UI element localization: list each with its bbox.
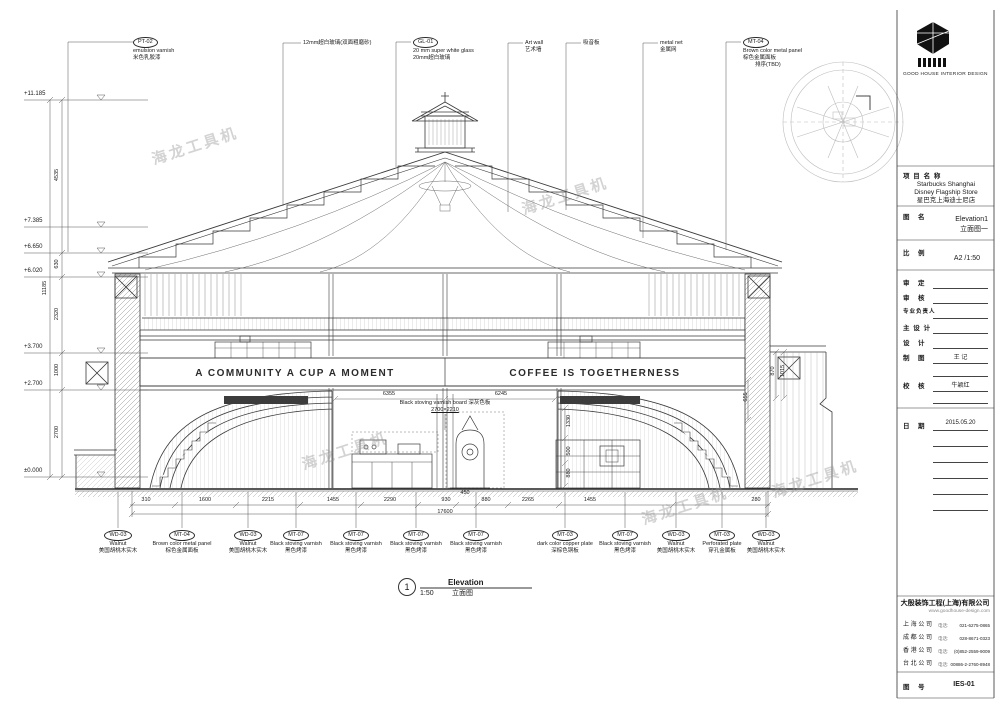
dim-total: 17600 bbox=[425, 509, 465, 516]
level-label: +6.650 bbox=[24, 244, 43, 251]
office-name: 成 都 公 司 bbox=[903, 635, 932, 642]
view-title-en: Elevation bbox=[448, 578, 484, 588]
material-label-cn: 12mm超白玻璃(双面粗磨砂) bbox=[303, 40, 371, 47]
level-label: +6.020 bbox=[24, 268, 43, 275]
tel-label: 电话: bbox=[938, 649, 948, 655]
material-callout: WD-03 Walnut 美国胡桃木实木 bbox=[726, 530, 806, 555]
dim-value: 880 bbox=[466, 497, 506, 504]
sign-label: 设 计 bbox=[903, 337, 926, 347]
level-label: +2.700 bbox=[24, 381, 43, 388]
cupola bbox=[412, 92, 478, 152]
sign-value: 王 记 bbox=[933, 352, 988, 361]
project-name-cn: 星巴克上海迪士尼店 bbox=[900, 197, 992, 205]
dim-value: 870 bbox=[770, 354, 776, 388]
sign-label: 校 核 bbox=[903, 380, 926, 390]
material-code: MT-03 bbox=[552, 530, 578, 541]
board-dim: 2700×2210 bbox=[360, 407, 530, 414]
dim-value: 6355 bbox=[372, 391, 406, 398]
dim-value: 1600 bbox=[185, 497, 225, 504]
sign-label: 审 核 bbox=[903, 292, 926, 302]
dim-value: 1455 bbox=[570, 497, 610, 504]
material-label-cn: 黑色烤漆 bbox=[436, 548, 516, 555]
sign-label: 专业负责人 bbox=[903, 307, 936, 315]
tent-ceiling bbox=[145, 162, 745, 272]
date-value: 2015.05.20 bbox=[933, 420, 988, 426]
dim-value: 2215 bbox=[248, 497, 288, 504]
office-name: 上 海 公 司 bbox=[903, 622, 932, 629]
project-label: 项 目 名 称 bbox=[903, 170, 941, 180]
dim-value: 880 bbox=[566, 456, 572, 490]
dim-total: 11185 bbox=[42, 271, 48, 305]
office-name: 香 港 公 司 bbox=[903, 648, 932, 655]
material-label-cn: 20mm超白玻璃 bbox=[413, 55, 450, 62]
banner-text-left: A COMMUNITY A CUP A MOMENT bbox=[150, 363, 440, 383]
material-code: MT-04 bbox=[169, 530, 195, 541]
tel-label: 电话: bbox=[938, 623, 948, 629]
key-plan bbox=[783, 62, 903, 182]
mezzanine bbox=[140, 274, 745, 358]
elevation-linework bbox=[0, 0, 1000, 707]
view-title-cn: 立面图 bbox=[452, 590, 473, 599]
material-label-cn: 艺术墙 bbox=[525, 47, 542, 54]
tel-label: 电话: bbox=[938, 636, 948, 642]
office-tel: 021-6275-0865 bbox=[948, 623, 990, 628]
dim-value: 1330 bbox=[566, 404, 572, 438]
dim-value: 655 bbox=[743, 380, 749, 414]
drawing-number-value: IES-01 bbox=[940, 681, 988, 690]
dim-value: 4535 bbox=[54, 158, 60, 192]
dim-value: 310 bbox=[126, 497, 166, 504]
material-note: 排序(TBD) bbox=[755, 62, 781, 69]
project-name-en2: Disney Flagship Store bbox=[900, 189, 992, 197]
company-website: www.goodhouse-design.com bbox=[898, 609, 990, 614]
material-code: WD-03 bbox=[752, 530, 779, 541]
dim-value: 2700 bbox=[54, 415, 60, 449]
drawing-name-en: Elevation1 bbox=[900, 216, 988, 225]
office-name: 台 北 公 司 bbox=[903, 661, 932, 668]
dim-value: 6245 bbox=[484, 391, 518, 398]
sign-label: 审 定 bbox=[903, 277, 926, 287]
material-code: WD-03 bbox=[104, 530, 131, 541]
tel-label: 电话: bbox=[938, 662, 948, 668]
dim-value: 630 bbox=[54, 247, 60, 281]
sign-value: 牛颖红 bbox=[933, 380, 988, 389]
dim-value: 1000 bbox=[54, 353, 60, 387]
material-code: MT-07 bbox=[283, 530, 309, 541]
material-code: MT-07 bbox=[463, 530, 489, 541]
office-tel: 00886-2-2760-8948 bbox=[948, 662, 990, 667]
dim-value: 930 bbox=[426, 497, 466, 504]
office-tel: (0)852-2559-9009 bbox=[948, 649, 990, 654]
drawing-number-label: 图 号 bbox=[903, 681, 926, 691]
scale-value: A2 /1:50 bbox=[900, 255, 980, 264]
level-label: +11.185 bbox=[24, 91, 45, 98]
dim-value: 2265 bbox=[508, 497, 548, 504]
material-code: MT-04 bbox=[743, 37, 769, 48]
view-scale: 1:50 bbox=[420, 590, 434, 599]
good-house-logo-icon bbox=[917, 22, 949, 67]
level-label: ±0.000 bbox=[24, 468, 42, 475]
material-code: PT-02 bbox=[133, 37, 158, 48]
drawing-sheet: 海龙工具机 海龙工具机 海龙工具机 海龙工具机 海龙工具机 PT-02 emul… bbox=[0, 0, 1000, 707]
dim-value: 1455 bbox=[313, 497, 353, 504]
material-label-cn: 吸音板 bbox=[583, 40, 600, 47]
project-name-en: Starbucks Shanghai bbox=[900, 181, 992, 189]
material-label-cn: 美国胡桃木实木 bbox=[726, 548, 806, 555]
material-callout: MT-07 Black stoving varnish 黑色烤漆 bbox=[436, 530, 516, 555]
logo-glyph bbox=[918, 58, 946, 67]
level-label: +7.385 bbox=[24, 218, 43, 225]
material-code: MT-07 bbox=[403, 530, 429, 541]
material-code: MT-07 bbox=[343, 530, 369, 541]
company-name: 大殷装饰工程(上海)有限公司 bbox=[898, 600, 992, 609]
drawing-name-cn: 立面图一 bbox=[900, 226, 988, 235]
dim-value: 280 bbox=[736, 497, 776, 504]
banner-text-right: COFFEE IS TOGETHERNESS bbox=[450, 363, 740, 383]
level-label: +3.700 bbox=[24, 344, 43, 351]
dim-value: 2290 bbox=[370, 497, 410, 504]
material-code: MT-07 bbox=[612, 530, 638, 541]
sign-label: 主 设 计 bbox=[903, 322, 931, 332]
material-label-cn: 金属网 bbox=[660, 47, 677, 54]
dim-value: 1015 bbox=[780, 354, 786, 388]
dim-value: 2320 bbox=[54, 297, 60, 331]
date-label: 日 期 bbox=[903, 420, 926, 430]
sign-label: 制 图 bbox=[903, 352, 926, 362]
view-number-bubble: 1 bbox=[398, 578, 416, 596]
office-tel: 028-8671-0323 bbox=[948, 636, 990, 641]
material-label-cn: 米色乳胶漆 bbox=[133, 55, 161, 62]
logo-company-en: GOOD HOUSE INTERIOR DESIGN bbox=[903, 72, 988, 78]
